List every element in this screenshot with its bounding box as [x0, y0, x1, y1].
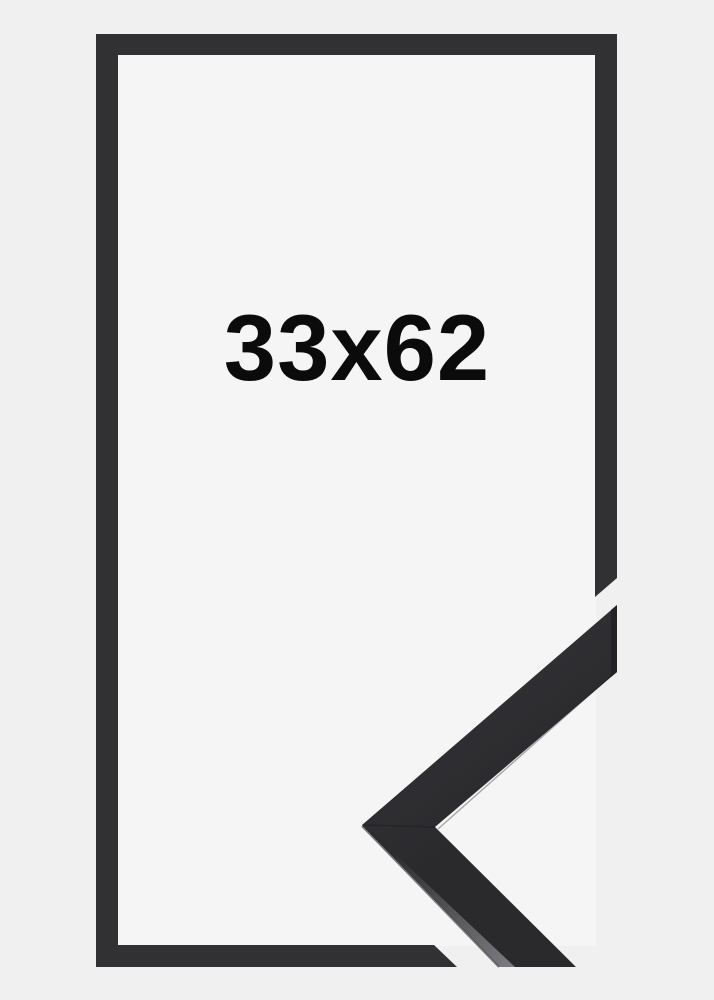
size-label: 33x62: [95, 288, 619, 408]
frame-corner-end-cut: [611, 605, 617, 677]
frame-outline-left: [96, 34, 118, 967]
frame-outline-bottom: [96, 945, 457, 967]
frame-outline-top: [96, 34, 617, 55]
frame-inner-area: [117, 54, 596, 946]
frame-size-product-image: 33x62: [0, 0, 714, 1000]
